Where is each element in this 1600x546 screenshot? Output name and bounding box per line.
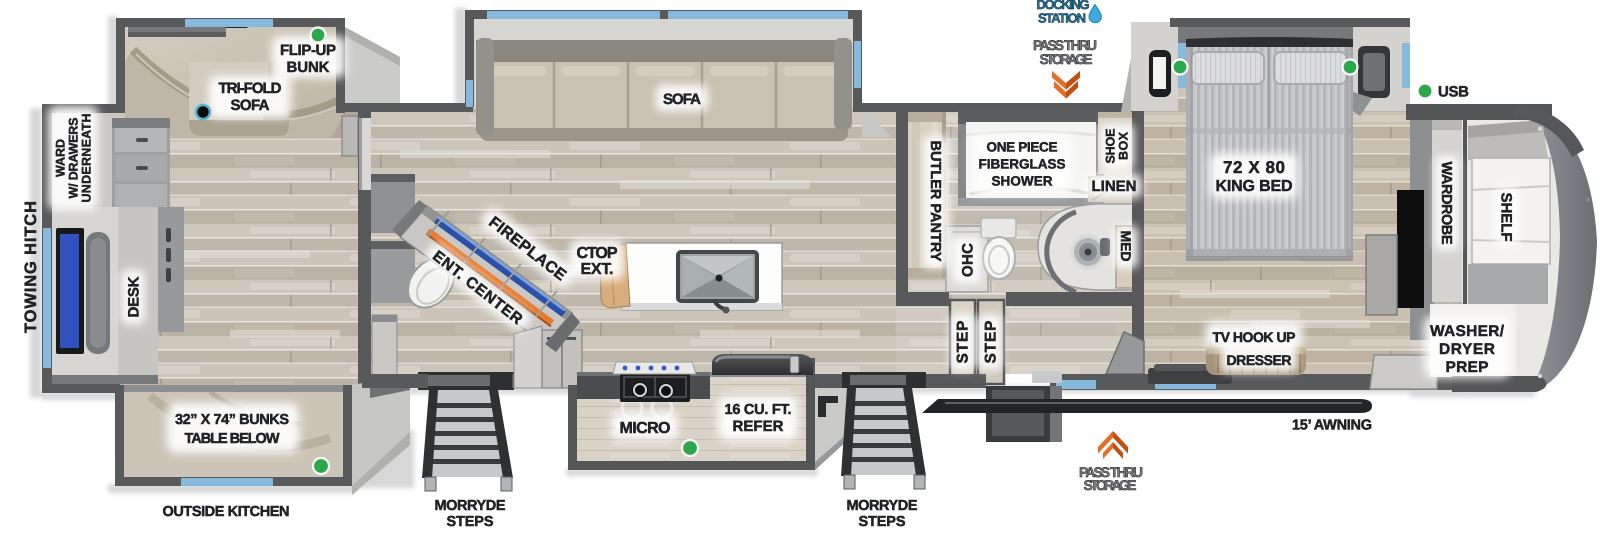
svg-text:TOWING HITCH: TOWING HITCH (22, 201, 40, 333)
svg-text:REFER: REFER (733, 418, 784, 435)
svg-text:STEP: STEP (955, 321, 972, 364)
svg-text:WARD: WARD (54, 139, 68, 177)
svg-text:STATION: STATION (1038, 11, 1086, 26)
svg-text:DESK: DESK (125, 276, 142, 317)
svg-text:MED: MED (1118, 231, 1134, 262)
svg-text:72 X 80: 72 X 80 (1223, 158, 1285, 177)
svg-text:STORAGE: STORAGE (1040, 51, 1093, 67)
svg-text:WARDROBE: WARDROBE (1438, 162, 1454, 245)
svg-text:STEP: STEP (983, 321, 1000, 364)
svg-text:UNDERNEATH: UNDERNEATH (80, 114, 94, 203)
svg-text:DRYER: DRYER (1439, 341, 1495, 358)
svg-text:KING BED: KING BED (1216, 178, 1293, 195)
svg-text:DRESSER: DRESSER (1227, 352, 1292, 368)
svg-text:32” X 74” BUNKS: 32” X 74” BUNKS (175, 412, 289, 428)
svg-text:STEPS: STEPS (859, 514, 906, 530)
svg-text:USB: USB (1438, 84, 1469, 101)
svg-text:STEPS: STEPS (447, 514, 494, 530)
svg-text:W/ DRAWERS: W/ DRAWERS (67, 118, 81, 199)
svg-text:BOX: BOX (1117, 131, 1131, 160)
svg-text:MORRYDE: MORRYDE (435, 498, 506, 514)
svg-text:SOFA: SOFA (231, 97, 270, 114)
svg-text:PREP: PREP (1446, 359, 1489, 376)
svg-text:WASHER/: WASHER/ (1430, 323, 1505, 340)
svg-text:CTOP: CTOP (577, 245, 618, 262)
svg-text:OHC: OHC (959, 243, 976, 277)
svg-text:MICRO: MICRO (620, 420, 671, 437)
svg-text:BUTLER PANTRY: BUTLER PANTRY (927, 141, 943, 262)
svg-text:TV HOOK UP: TV HOOK UP (1213, 329, 1296, 345)
svg-text:OUTSIDE KITCHEN: OUTSIDE KITCHEN (163, 504, 290, 520)
svg-text:FLIP-UP: FLIP-UP (280, 42, 336, 59)
svg-text:BUNK: BUNK (287, 59, 330, 76)
svg-text:MORRYDE: MORRYDE (847, 498, 918, 514)
svg-text:FIBERGLASS: FIBERGLASS (979, 157, 1066, 172)
svg-text:16 CU. FT.: 16 CU. FT. (725, 402, 792, 418)
svg-text:TABLE BELOW: TABLE BELOW (185, 431, 280, 447)
svg-text:LINEN: LINEN (1092, 178, 1137, 195)
svg-text:SOFA: SOFA (663, 91, 701, 108)
svg-text:15’ AWNING: 15’ AWNING (1292, 418, 1372, 434)
svg-text:STORAGE: STORAGE (1084, 477, 1137, 493)
svg-text:SHOE: SHOE (1104, 129, 1118, 164)
svg-text:SHELF: SHELF (1498, 193, 1515, 242)
svg-text:ONE PIECE: ONE PIECE (987, 140, 1058, 155)
svg-text:SHOWER: SHOWER (992, 174, 1053, 189)
svg-text:EXT.: EXT. (581, 261, 614, 278)
svg-text:TRI-FOLD: TRI-FOLD (219, 80, 282, 97)
